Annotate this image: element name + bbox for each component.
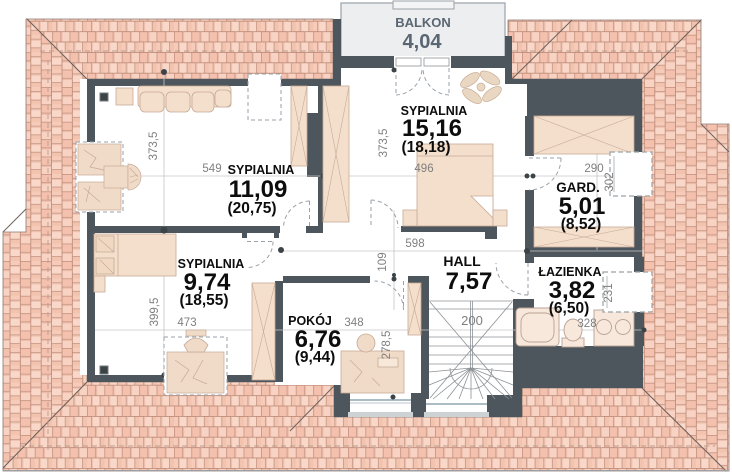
svg-text:HALL: HALL (443, 253, 481, 269)
svg-text:15,16: 15,16 (402, 115, 462, 142)
svg-text:231: 231 (603, 283, 615, 302)
svg-text:278,5: 278,5 (381, 331, 393, 360)
svg-text:373,5: 373,5 (378, 129, 390, 158)
svg-text:109: 109 (377, 252, 389, 271)
svg-text:496: 496 (414, 163, 433, 175)
svg-text:4,04: 4,04 (403, 31, 443, 53)
svg-text:(18,18): (18,18) (401, 139, 450, 156)
svg-text:(20,75): (20,75) (227, 200, 276, 217)
svg-text:(18,55): (18,55) (179, 292, 228, 309)
svg-text:373,5: 373,5 (148, 132, 160, 161)
svg-text:328: 328 (577, 318, 596, 330)
svg-text:SYPIALNIA: SYPIALNIA (228, 163, 295, 177)
svg-text:549: 549 (202, 163, 221, 175)
svg-text:302: 302 (604, 172, 616, 191)
svg-text:399,5: 399,5 (149, 298, 161, 327)
svg-text:348: 348 (344, 317, 363, 329)
svg-text:290: 290 (584, 163, 603, 175)
svg-text:598: 598 (405, 238, 424, 250)
svg-text:(9,44): (9,44) (295, 349, 336, 366)
svg-text:BALKON: BALKON (395, 15, 451, 30)
svg-text:7,57: 7,57 (446, 268, 493, 295)
svg-text:200: 200 (461, 313, 483, 328)
svg-text:11,09: 11,09 (229, 176, 288, 203)
svg-text:(8,52): (8,52) (561, 216, 602, 233)
svg-text:473: 473 (177, 317, 196, 329)
svg-text:(6,50): (6,50) (549, 300, 590, 317)
